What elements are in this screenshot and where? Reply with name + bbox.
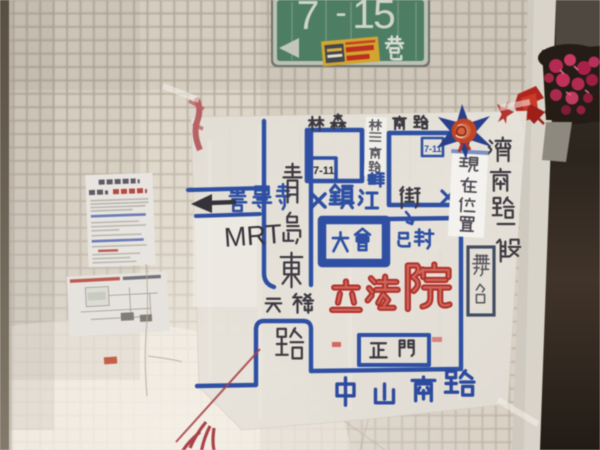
- svg-text:7: 7: [297, 0, 320, 38]
- svg-text:7-11: 7-11: [424, 144, 442, 154]
- svg-text:MRT: MRT: [223, 219, 283, 253]
- svg-text:15: 15: [352, 0, 395, 37]
- svg-text:7-11: 7-11: [313, 165, 334, 177]
- svg-text:-: -: [335, 0, 346, 32]
